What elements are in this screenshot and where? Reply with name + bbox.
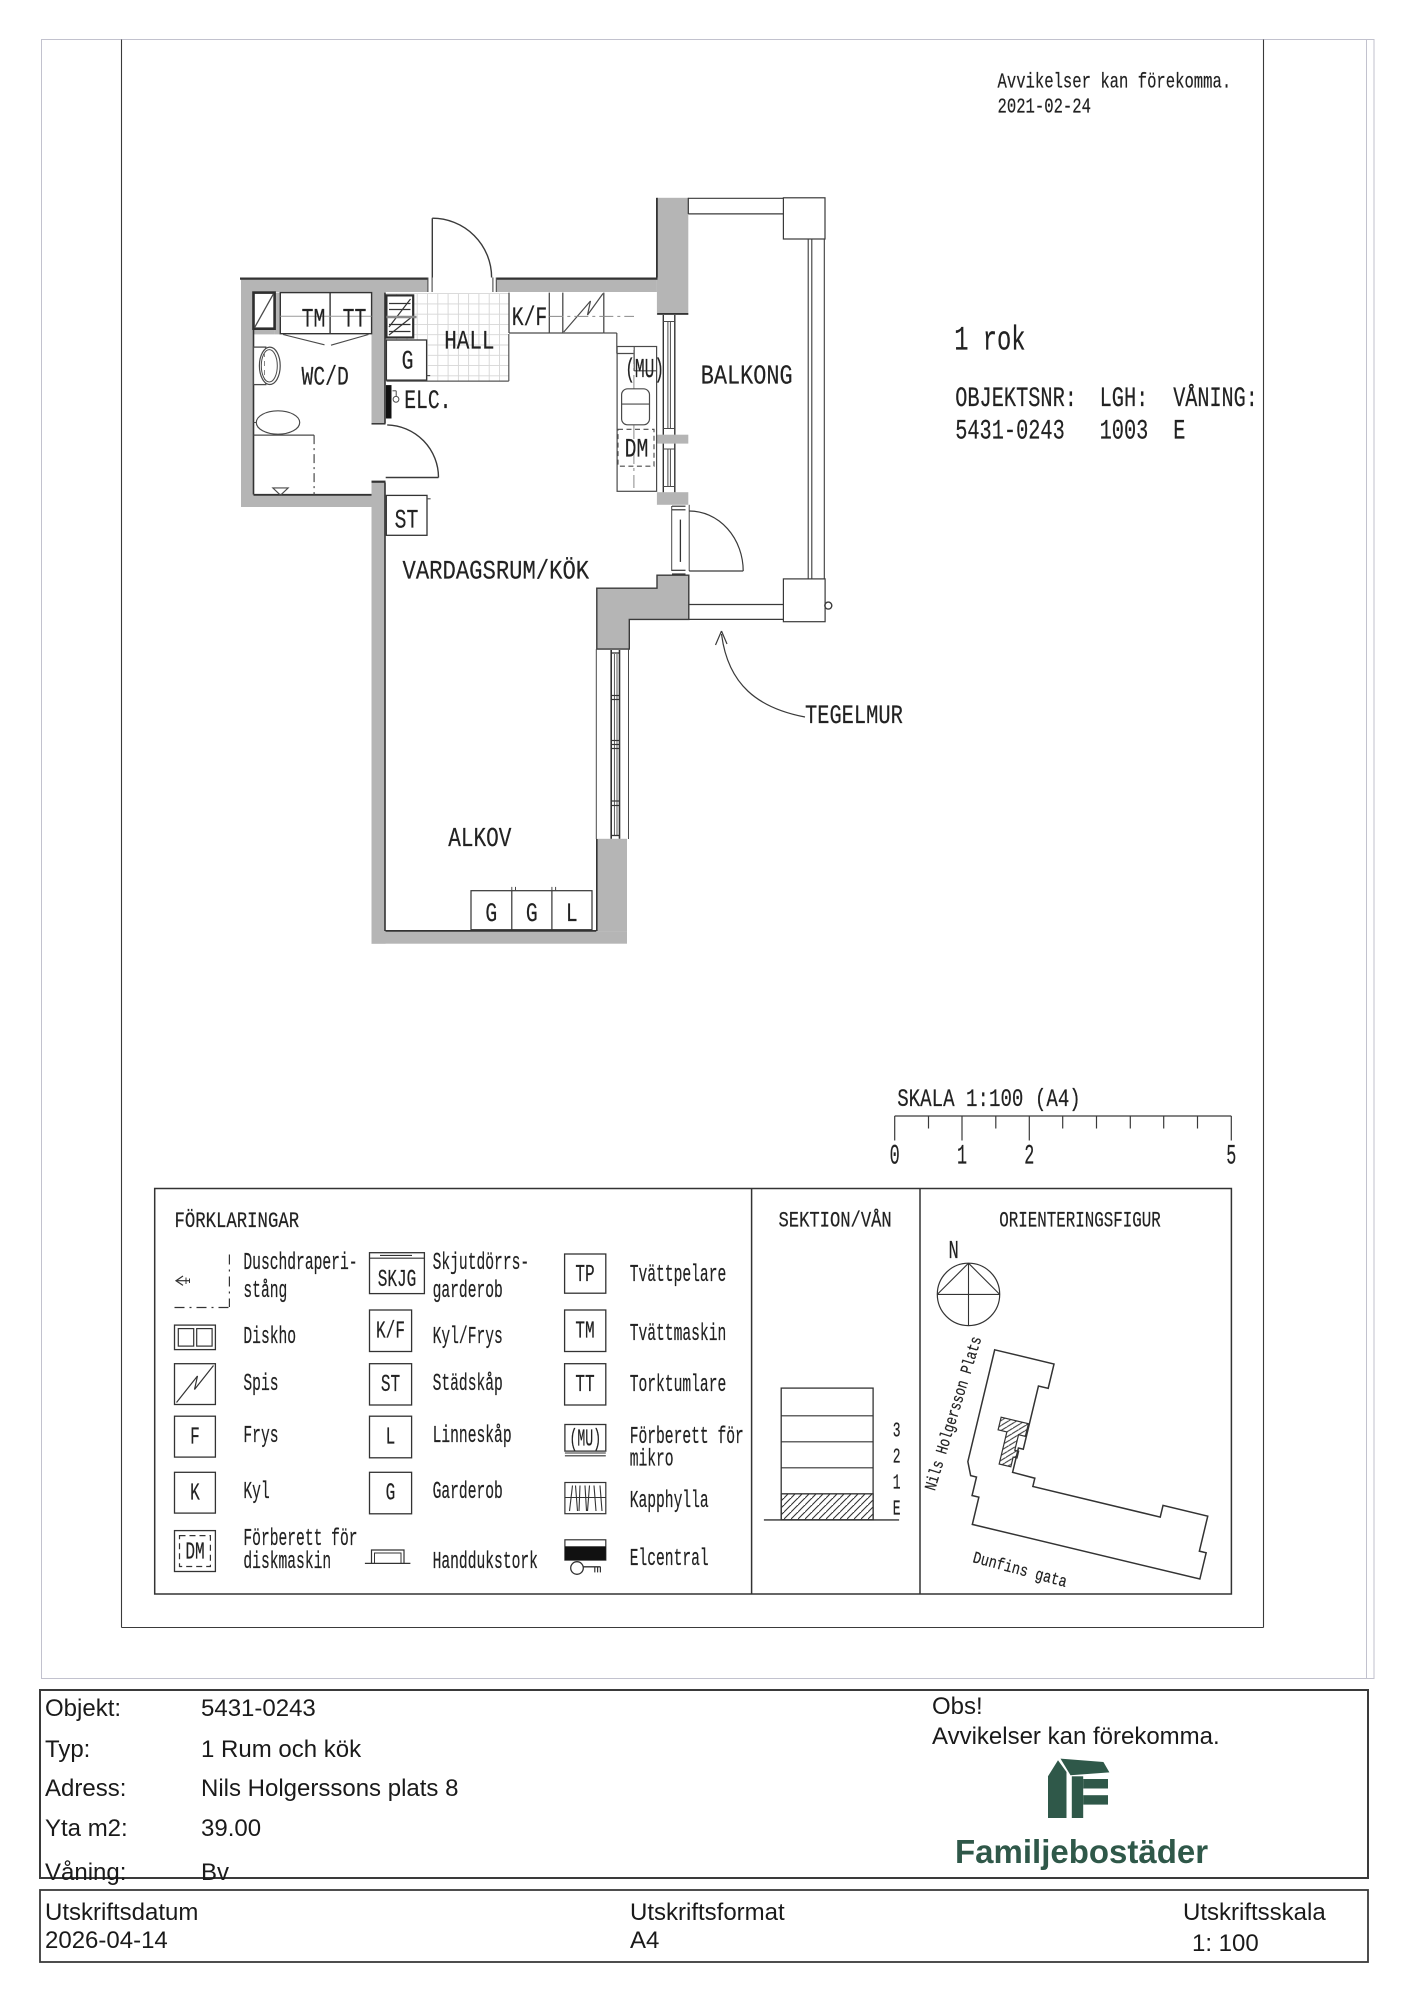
- svg-text:Nils Holgerssons plats 8: Nils Holgerssons plats 8: [201, 1775, 458, 1802]
- svg-text:1003: 1003: [1100, 417, 1149, 448]
- svg-text:ST: ST: [381, 1372, 400, 1399]
- svg-text:Linneskåp: Linneskåp: [433, 1421, 512, 1449]
- svg-text:N: N: [948, 1237, 958, 1267]
- svg-text:Utskriftsskala: Utskriftsskala: [1183, 1899, 1326, 1926]
- svg-text:E: E: [893, 1498, 901, 1522]
- svg-text:Tvättmaskin: Tvättmaskin: [630, 1319, 727, 1347]
- svg-text:LGH:: LGH:: [1100, 384, 1149, 415]
- svg-text:Torktumlare: Torktumlare: [630, 1370, 727, 1398]
- svg-text:Adress:: Adress:: [45, 1775, 126, 1802]
- svg-text:39.00: 39.00: [201, 1815, 261, 1842]
- svg-text:Tvättpelare: Tvättpelare: [630, 1260, 727, 1288]
- svg-text:ALKOV: ALKOV: [448, 825, 512, 855]
- svg-text:TEGELMUR: TEGELMUR: [805, 702, 903, 732]
- svg-text:K: K: [190, 1481, 200, 1508]
- svg-text:SKALA 1:100 (A4): SKALA 1:100 (A4): [897, 1085, 1081, 1114]
- svg-text:stång: stång: [243, 1276, 287, 1304]
- svg-text:Duschdraperi-: Duschdraperi-: [243, 1248, 357, 1276]
- svg-text:Objekt:: Objekt:: [45, 1695, 121, 1722]
- svg-text:SEKTION/VÅN: SEKTION/VÅN: [779, 1209, 892, 1234]
- svg-text:ORIENTERINGSFIGUR: ORIENTERINGSFIGUR: [999, 1208, 1161, 1233]
- svg-text:F: F: [190, 1425, 200, 1452]
- svg-text:Avvikelser kan förekomma.: Avvikelser kan förekomma.: [932, 1723, 1220, 1750]
- svg-text:1: 1: [957, 1141, 967, 1173]
- svg-text:Garderob: Garderob: [433, 1477, 503, 1505]
- svg-text:2: 2: [1024, 1141, 1034, 1173]
- svg-text:5: 5: [1226, 1141, 1236, 1173]
- svg-text:G: G: [386, 1481, 396, 1508]
- svg-text:Utskriftsdatum: Utskriftsdatum: [45, 1899, 198, 1926]
- svg-text:Utskriftsformat: Utskriftsformat: [630, 1899, 785, 1926]
- svg-text:Kapphylla: Kapphylla: [630, 1486, 709, 1514]
- svg-text:L: L: [386, 1425, 396, 1452]
- svg-text:Spis: Spis: [243, 1369, 278, 1397]
- svg-text:0: 0: [890, 1141, 900, 1173]
- svg-text:E: E: [1173, 417, 1185, 448]
- svg-text:garderob: garderob: [433, 1276, 503, 1304]
- svg-text:FÖRKLARINGAR: FÖRKLARINGAR: [175, 1208, 300, 1234]
- svg-text:BALKONG: BALKONG: [701, 363, 793, 393]
- svg-text:VÅNING:: VÅNING:: [1173, 383, 1258, 415]
- svg-text:(MU): (MU): [625, 354, 664, 386]
- svg-text:Familjebostäder: Familjebostäder: [955, 1833, 1208, 1870]
- svg-text:Städskåp: Städskåp: [433, 1369, 503, 1397]
- svg-text:2021-02-24: 2021-02-24: [998, 94, 1091, 119]
- svg-text:SKJG: SKJG: [378, 1267, 417, 1294]
- svg-text:TT: TT: [575, 1372, 594, 1399]
- svg-text:G: G: [402, 347, 414, 378]
- svg-text:ST: ST: [395, 506, 419, 537]
- svg-text:G: G: [526, 899, 538, 930]
- svg-text:TM: TM: [575, 1319, 594, 1346]
- svg-text:HALL: HALL: [444, 327, 494, 357]
- svg-text:Bv: Bv: [201, 1859, 229, 1886]
- svg-text:L: L: [566, 899, 578, 930]
- svg-text:diskmaskin: diskmaskin: [243, 1547, 331, 1575]
- svg-text:Elcentral: Elcentral: [630, 1544, 709, 1572]
- svg-text:Diskho: Diskho: [243, 1322, 296, 1350]
- svg-text:5431-0243: 5431-0243: [201, 1695, 316, 1722]
- svg-text:mikro: mikro: [630, 1445, 674, 1473]
- svg-text:1 Rum och kök: 1 Rum och kök: [201, 1736, 362, 1763]
- svg-text:DM: DM: [185, 1540, 204, 1567]
- svg-text:Frys: Frys: [243, 1421, 278, 1449]
- svg-text:2026-04-14: 2026-04-14: [45, 1927, 168, 1954]
- svg-text:Våning:: Våning:: [45, 1859, 126, 1886]
- svg-text:Yta m2:: Yta m2:: [45, 1815, 128, 1842]
- svg-text:A4: A4: [630, 1927, 659, 1954]
- svg-text:Obs!: Obs!: [932, 1693, 983, 1720]
- svg-text:Typ:: Typ:: [45, 1736, 90, 1763]
- svg-text:TP: TP: [575, 1262, 594, 1289]
- svg-text:DM: DM: [625, 435, 649, 466]
- svg-text:WC/D: WC/D: [302, 363, 349, 394]
- svg-text:TT: TT: [343, 305, 367, 336]
- svg-text:1: 1: [893, 1472, 901, 1496]
- svg-text:(MU): (MU): [569, 1426, 601, 1453]
- svg-text:VARDAGSRUM/KÖK: VARDAGSRUM/KÖK: [403, 557, 590, 588]
- svg-text:Handdukstork: Handdukstork: [433, 1547, 538, 1575]
- svg-text:3: 3: [893, 1420, 901, 1444]
- svg-text:K/F: K/F: [376, 1319, 405, 1346]
- svg-text:Kyl: Kyl: [243, 1477, 269, 1505]
- svg-text:OBJEKTSNR:: OBJEKTSNR:: [955, 384, 1077, 415]
- svg-text:5431-0243: 5431-0243: [955, 417, 1065, 448]
- svg-text:1: 100: 1: 100: [1192, 1930, 1259, 1957]
- svg-text:2: 2: [893, 1446, 901, 1470]
- svg-text:Avvikelser kan förekomma.: Avvikelser kan förekomma.: [998, 69, 1232, 94]
- svg-text:Skjutdörrs-: Skjutdörrs-: [433, 1248, 530, 1276]
- svg-text:ELC.: ELC.: [404, 386, 451, 417]
- svg-text:K/F: K/F: [512, 303, 547, 334]
- svg-text:G: G: [485, 899, 497, 930]
- svg-text:1 rok: 1 rok: [954, 322, 1025, 360]
- svg-text:TM: TM: [302, 305, 326, 336]
- svg-text:Kyl/Frys: Kyl/Frys: [433, 1322, 503, 1350]
